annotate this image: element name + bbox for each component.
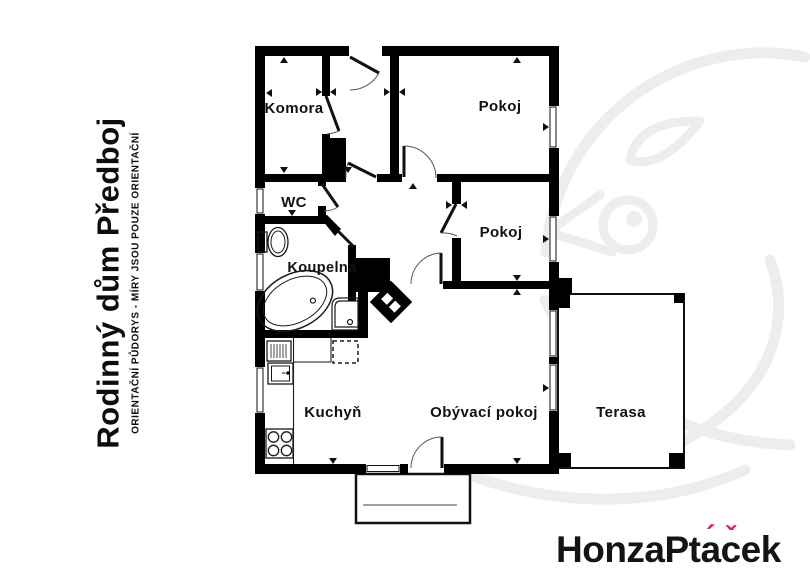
terrace-post-bottom-right xyxy=(669,453,684,468)
room-label-wc: WC xyxy=(281,194,307,211)
room-label-komora: Komora xyxy=(264,100,323,117)
plan-subtitle: ORIENTAČNÍ PŮDORYS - MÍRY JSOU POUZE ORI… xyxy=(131,43,142,523)
terrace-post-top-right xyxy=(674,293,684,303)
door-swing-arc xyxy=(350,73,379,90)
brand-letter-a: a´ xyxy=(701,530,721,571)
room-label-obyvaci-pokoj: Obývací pokoj xyxy=(430,404,538,421)
terrace-wall-stub xyxy=(559,278,572,294)
terrace-outline xyxy=(555,278,684,468)
watermark-body-curve-3 xyxy=(470,470,745,499)
watermark-eye xyxy=(603,200,653,250)
watermark-brow xyxy=(630,121,700,162)
room-label-pokoj1: Pokoj xyxy=(479,98,522,115)
plan-title-block: Rodinný dům Předboj ORIENTAČNÍ PŮDORYS -… xyxy=(93,43,142,523)
door-leaf-wc xyxy=(322,184,338,207)
fridge-dashed-outline xyxy=(333,341,358,363)
window-symbol xyxy=(257,254,263,290)
plan-title: Rodinný dům Předboj xyxy=(93,43,124,523)
sink-symbol xyxy=(268,363,293,384)
window-symbol xyxy=(257,368,263,412)
door-leaf-hall xyxy=(348,163,376,177)
door-leaf-komora xyxy=(326,96,339,131)
bathroom-diagonal-wall xyxy=(318,215,341,236)
window-symbol xyxy=(367,466,399,472)
entry-porch xyxy=(356,474,470,523)
window-symbol xyxy=(257,189,263,213)
door-swing-arc xyxy=(404,146,436,178)
room-label-kuchyn: Kuchyň xyxy=(304,404,361,421)
door-swing-arc xyxy=(324,207,338,211)
room-label-koupelna: Koupelna xyxy=(287,260,357,276)
brand-text-part1: HonzaPt xyxy=(556,529,701,570)
door-swing-arc xyxy=(327,131,339,134)
terrace-post-bottom-left xyxy=(557,453,571,467)
kitchen-counter xyxy=(294,338,332,464)
dish-drainer-symbol xyxy=(267,341,291,361)
window-symbol xyxy=(550,217,556,261)
room-label-pokoj2: Pokoj xyxy=(480,224,523,241)
stove-symbol xyxy=(266,429,293,458)
door-leaf-bathroom xyxy=(338,231,354,247)
watermark-pupil xyxy=(626,211,642,227)
window-symbol xyxy=(550,311,556,356)
brand-text-part2: ek xyxy=(741,529,781,570)
window-symbol xyxy=(550,365,556,410)
shower-symbol xyxy=(332,298,358,330)
door-swing-arc xyxy=(411,253,441,284)
brand-letter-c: cˇ xyxy=(721,530,741,571)
page: Komora Pokoj WC Koupelna Pokoj Kuchyň Ob… xyxy=(0,0,810,572)
window-symbol xyxy=(550,107,556,147)
door-swing-arc xyxy=(411,437,442,468)
chimney-block-1 xyxy=(326,138,346,182)
caron-accent: ˇ xyxy=(726,522,735,555)
acute-accent: ´ xyxy=(706,521,715,554)
door-leaf-pokoj2 xyxy=(441,204,456,233)
brand-logo: HonzaPta´cˇek xyxy=(556,530,781,571)
room-label-terasa: Terasa xyxy=(596,404,646,421)
door-swing-arc xyxy=(441,233,457,236)
door-leaf-entry xyxy=(350,57,379,73)
